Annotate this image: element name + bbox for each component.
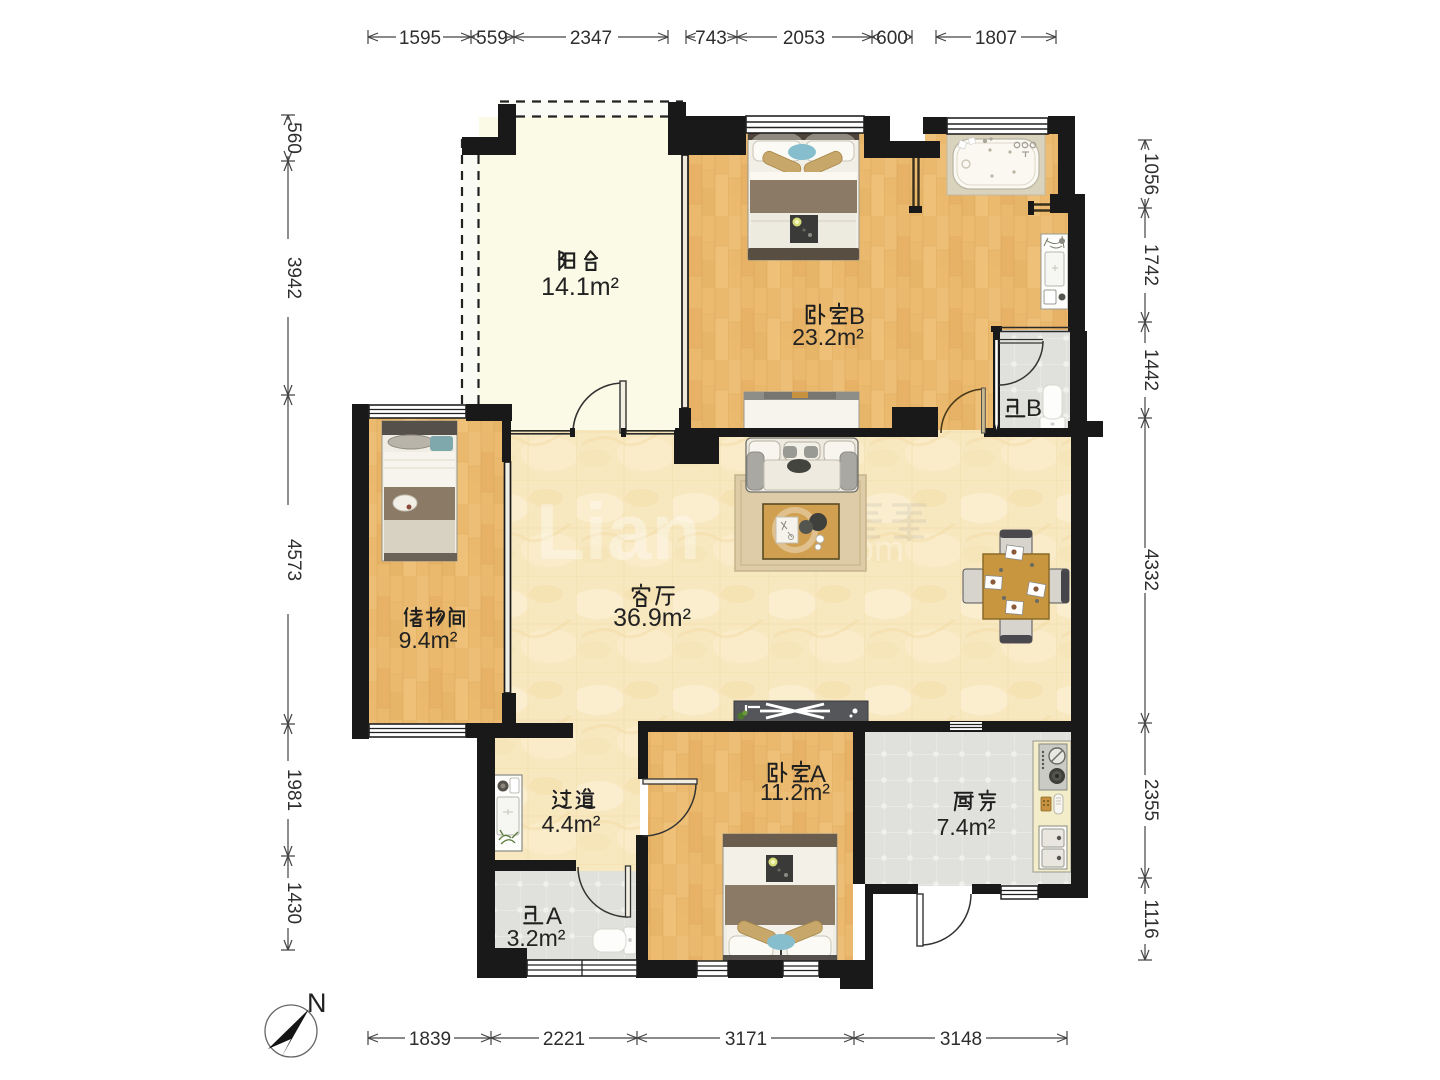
svg-text:Lian: Lian <box>536 487 700 576</box>
svg-text:1056: 1056 <box>1140 153 1161 195</box>
svg-text:2355: 2355 <box>1140 779 1161 821</box>
svg-text:9.4m²: 9.4m² <box>399 627 458 653</box>
svg-text:1116: 1116 <box>1140 899 1161 938</box>
svg-text:B: B <box>1026 395 1042 422</box>
svg-text:1807: 1807 <box>975 28 1017 49</box>
svg-text:4.4m²: 4.4m² <box>542 811 601 837</box>
svg-text:36.9m²: 36.9m² <box>613 604 691 632</box>
svg-text:3942: 3942 <box>283 257 304 299</box>
svg-text:3171: 3171 <box>725 1029 767 1050</box>
svg-text:1595: 1595 <box>399 28 441 49</box>
svg-text:B: B <box>849 303 865 330</box>
svg-text:743: 743 <box>695 28 727 49</box>
svg-text:A: A <box>546 903 562 930</box>
svg-text:1742: 1742 <box>1140 244 1161 286</box>
svg-text:2221: 2221 <box>543 1029 585 1050</box>
svg-text:2053: 2053 <box>783 28 825 49</box>
svg-text:14.1m²: 14.1m² <box>541 273 619 301</box>
svg-text:600: 600 <box>876 28 908 49</box>
svg-text:3148: 3148 <box>940 1029 982 1050</box>
svg-text:4332: 4332 <box>1140 549 1161 591</box>
svg-text:559: 559 <box>476 28 508 49</box>
svg-text:1981: 1981 <box>283 769 304 811</box>
svg-text:7.4m²: 7.4m² <box>937 814 996 840</box>
svg-text:N: N <box>307 988 327 1018</box>
svg-text:1442: 1442 <box>1140 349 1161 391</box>
svg-text:1430: 1430 <box>283 882 304 924</box>
svg-text:A: A <box>810 761 826 788</box>
svg-text:2347: 2347 <box>570 28 612 49</box>
svg-text:560: 560 <box>283 122 304 154</box>
svg-text:4573: 4573 <box>283 539 304 581</box>
svg-text:1839: 1839 <box>409 1029 451 1050</box>
